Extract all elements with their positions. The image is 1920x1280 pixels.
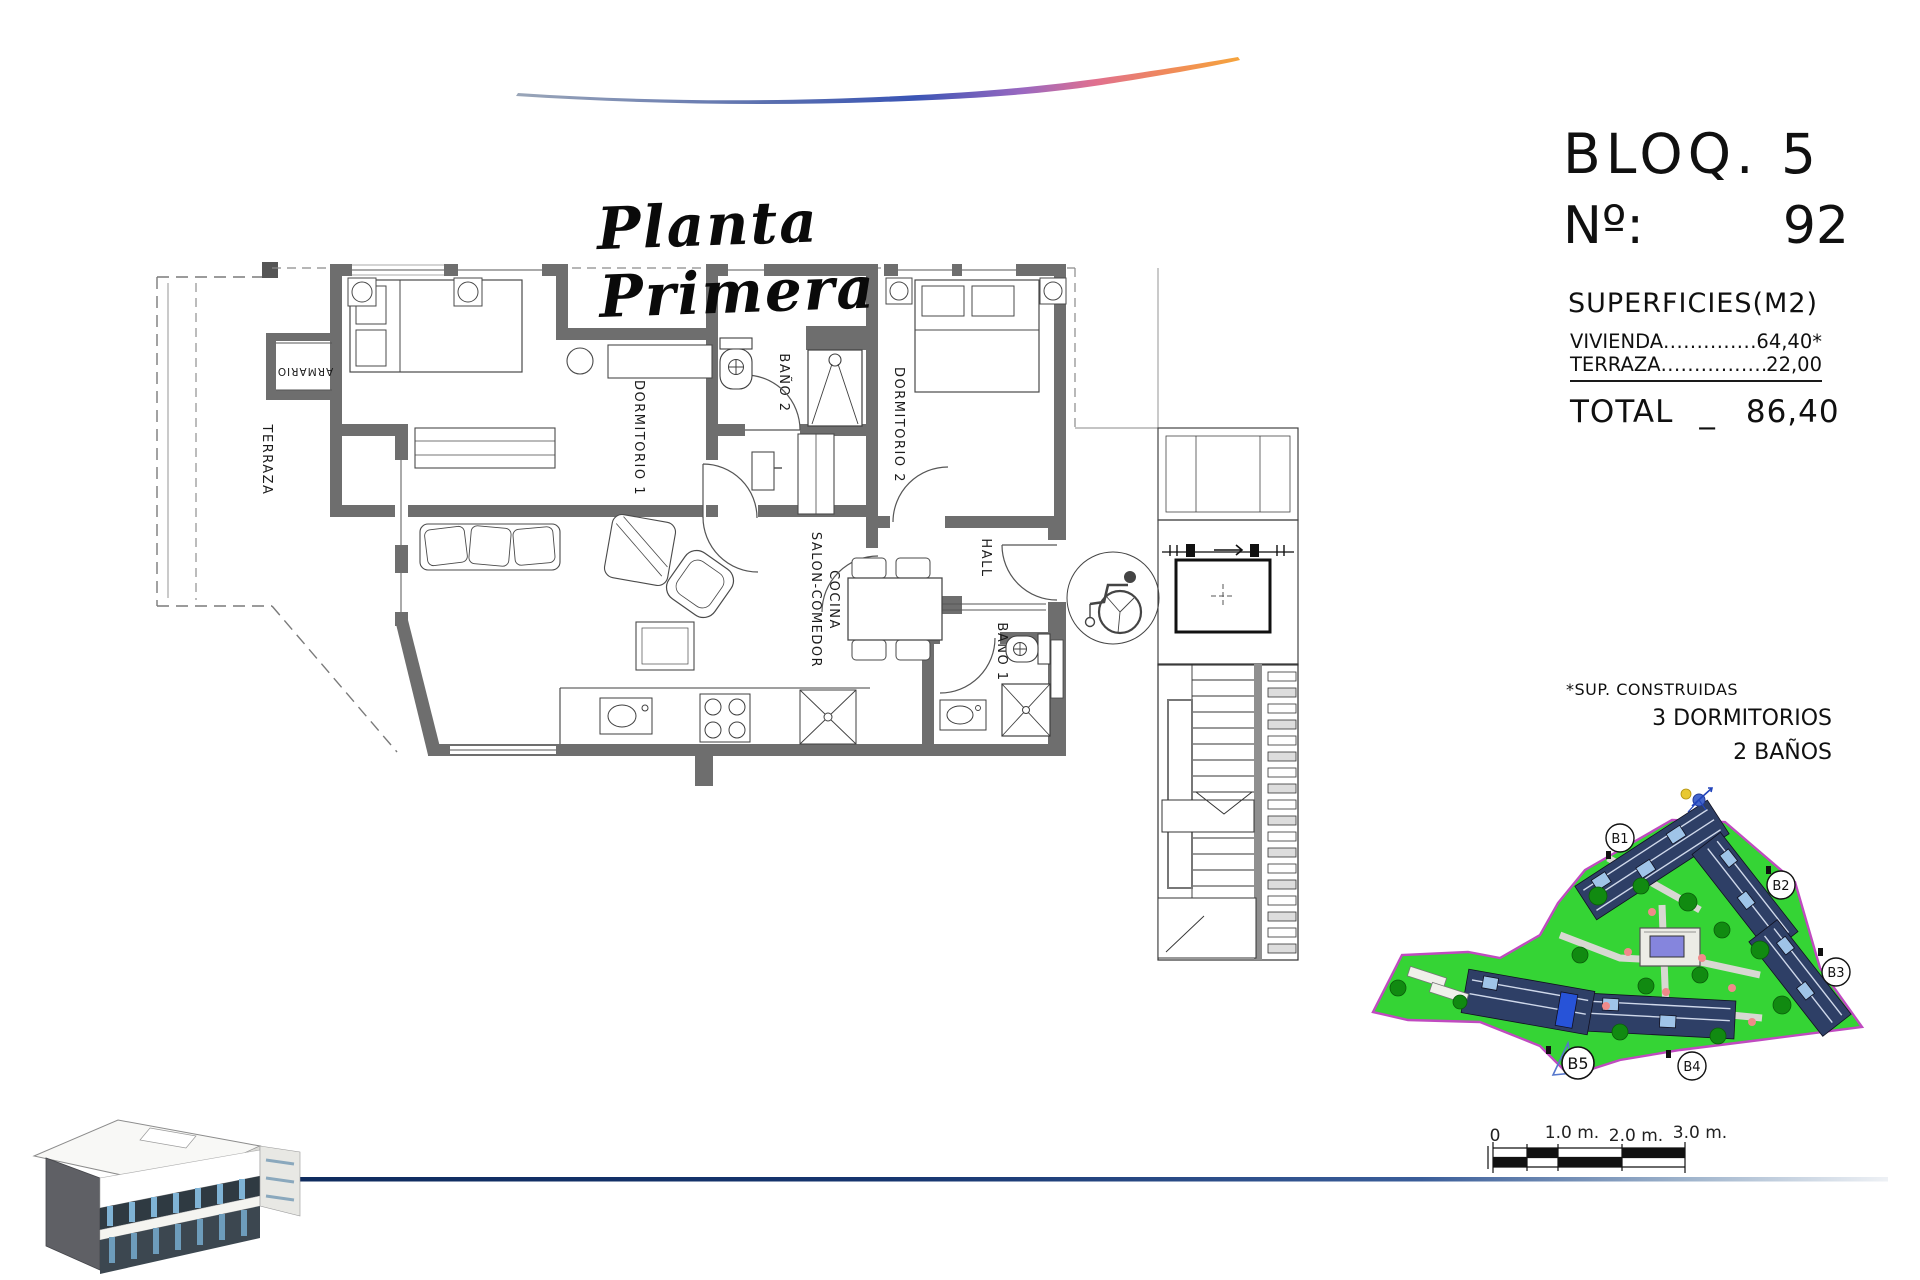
- site-pool: [1640, 928, 1700, 966]
- surface-row-vivienda: VIVIENDA .................... 64,40*: [1570, 330, 1822, 353]
- total-value: 86,40: [1746, 394, 1840, 430]
- scale-3m: 3.0 m.: [1673, 1123, 1727, 1143]
- scale-2m: 2.0 m.: [1609, 1126, 1663, 1146]
- surface-label: VIVIENDA: [1570, 330, 1663, 353]
- scale-0: 0: [1490, 1126, 1501, 1146]
- leader-dots: ....................: [1661, 353, 1767, 376]
- staircase: [1158, 664, 1298, 960]
- elevator: [1158, 520, 1298, 665]
- svg-text:B4: B4: [1683, 1060, 1700, 1075]
- site-plan: B1 B2 B3 B4 B5: [1373, 788, 1862, 1080]
- badge-b3: B3: [1822, 958, 1850, 986]
- badge-b2: B2: [1767, 871, 1795, 899]
- total-separator: _: [1699, 394, 1716, 430]
- svg-text:B2: B2: [1772, 879, 1789, 894]
- column-marker: [262, 262, 278, 278]
- number-value: 92: [1783, 196, 1849, 256]
- building-3d-render: [34, 1120, 300, 1274]
- label-terraza: TERRAZA: [259, 424, 274, 496]
- total-row: TOTAL _ 86,40: [1570, 394, 1870, 430]
- label-dormitorio2: DORMITORIO 2: [891, 367, 906, 483]
- surfaces-table: VIVIENDA .................... 64,40* TER…: [1570, 330, 1822, 382]
- surface-value: 64,40*: [1756, 330, 1822, 353]
- total-label: TOTAL: [1570, 394, 1673, 430]
- vestibule-closet: [752, 434, 834, 514]
- label-bano2: BAÑO 2: [776, 353, 792, 412]
- scale-1m: 1.0 m.: [1545, 1123, 1599, 1143]
- number-label: Nº:: [1563, 196, 1644, 256]
- label-hall: HALL: [978, 538, 993, 577]
- note-bedrooms: 3 DORMITORIOS: [1540, 706, 1832, 731]
- elevator-machine-room: [1158, 428, 1298, 520]
- label-armario: ARMARIO: [277, 365, 333, 377]
- scale-bar: 0 1.0 m. 2.0 m. 3.0 m.: [1488, 1123, 1727, 1173]
- block-label: BLOQ. 5: [1563, 122, 1821, 186]
- swoosh-decoration: [516, 57, 1240, 104]
- surface-row-terraza: TERRAZA .................... 22,00: [1570, 353, 1822, 376]
- page-title: Planta Primera: [596, 177, 1120, 331]
- svg-text:B1: B1: [1611, 832, 1628, 847]
- shaft-door: [1051, 640, 1063, 698]
- stair-elevator-core: [1158, 428, 1298, 960]
- page: TERRAZA ARMARIO DORMITORIO 1 BAÑO 2 DORM…: [0, 0, 1920, 1280]
- floor-plan: TERRAZA ARMARIO DORMITORIO 1 BAÑO 2 DORM…: [157, 262, 1159, 786]
- note-bathrooms: 2 BAÑOS: [1540, 740, 1832, 765]
- label-salon-line2: COCINA: [826, 570, 841, 630]
- svg-text:B5: B5: [1567, 1054, 1588, 1073]
- label-dormitorio1: DORMITORIO 1: [631, 380, 646, 496]
- footer-line: [222, 1177, 1888, 1182]
- wheelchair-symbol: [1067, 552, 1159, 644]
- block-number-row: Nº: 92: [1563, 196, 1849, 256]
- surface-value: 22,00: [1766, 353, 1822, 376]
- svg-text:B3: B3: [1827, 966, 1844, 981]
- badge-b1: B1: [1606, 824, 1634, 852]
- salon-furniture: [420, 513, 942, 670]
- surface-label: TERRAZA: [1570, 353, 1661, 376]
- footnote-sup-construidas: *SUP. CONSTRUIDAS: [1566, 680, 1738, 699]
- label-salon-line1: SALON-COMEDOR: [808, 532, 823, 668]
- badge-b5: B5: [1562, 1047, 1594, 1079]
- kitchen-fixtures: [560, 688, 870, 744]
- badge-b4: B4: [1678, 1052, 1706, 1080]
- leader-dots: ....................: [1663, 330, 1756, 353]
- surfaces-heading: SUPERFICIES(M2): [1568, 288, 1818, 319]
- stair-comb: [1268, 672, 1296, 953]
